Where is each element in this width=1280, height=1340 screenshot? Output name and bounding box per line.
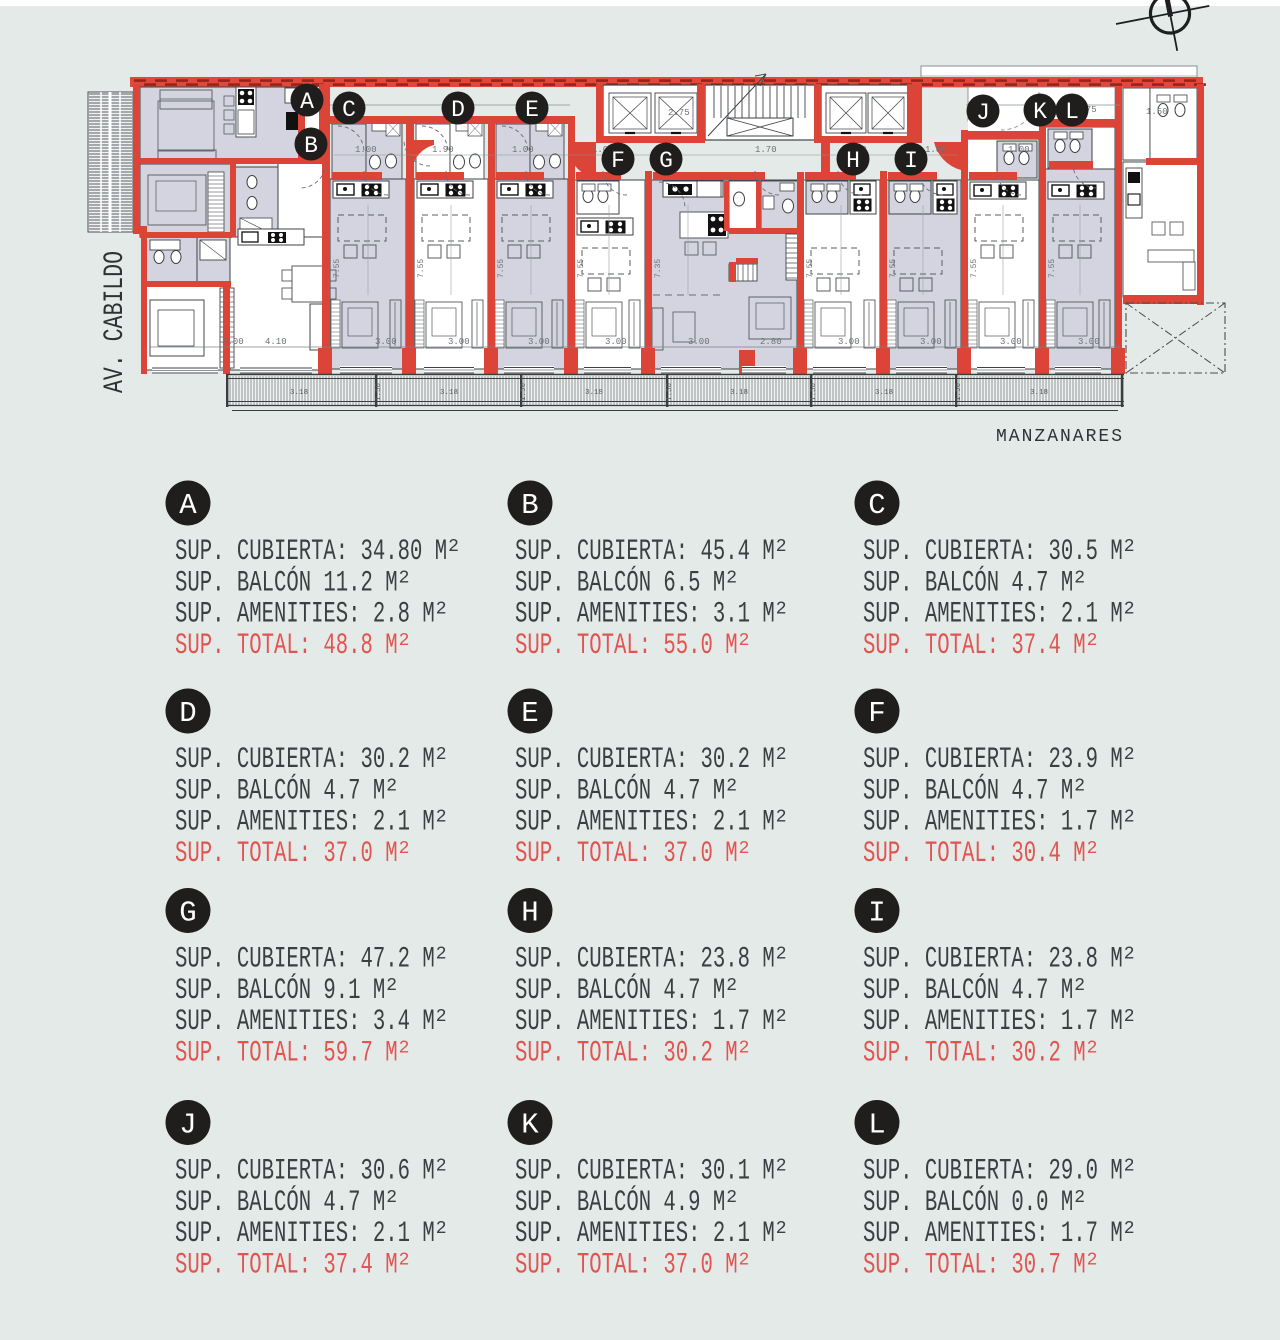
svg-text:SUP. BALCÓN 4.7 M: SUP. BALCÓN 4.7 M [863,565,1073,599]
svg-text:2: 2 [1124,745,1135,765]
svg-text:2: 2 [739,839,750,859]
svg-text:SUP. BALCÓN 6.5 M: SUP. BALCÓN 6.5 M [515,565,725,599]
svg-text:2: 2 [776,808,787,828]
svg-text:SUP. BALCÓN 4.7 M: SUP. BALCÓN 4.7 M [175,1185,385,1219]
svg-text:I: I [904,148,918,174]
svg-text:2: 2 [1087,1038,1098,1058]
svg-text:2: 2 [399,839,410,859]
svg-text:F: F [611,148,625,174]
svg-text:2: 2 [436,1157,447,1177]
svg-text:3.00: 3.00 [920,337,942,347]
svg-text:2: 2 [726,976,737,996]
svg-text:7.55: 7.55 [333,259,342,278]
svg-text:SUP. CUBIERTA: 30.6 M: SUP. CUBIERTA: 30.6 M [175,1155,435,1188]
svg-text:1.00: 1.00 [925,145,947,155]
svg-text:1.50: 1.50 [666,382,674,401]
svg-text:B: B [521,489,538,522]
svg-text:SUP. BALCÓN 4.7 M: SUP. BALCÓN 4.7 M [863,973,1073,1007]
svg-text:2: 2 [739,1038,750,1058]
svg-text:H: H [521,897,538,930]
svg-text:2: 2 [739,1250,750,1270]
svg-text:2: 2 [1124,1157,1135,1177]
svg-text:SUP. AMENITIES: 1.7 M: SUP. AMENITIES: 1.7 M [863,1217,1123,1250]
svg-text:7.55: 7.55 [970,259,979,278]
svg-text:3.00: 3.00 [1000,337,1022,347]
svg-text:2: 2 [1124,808,1135,828]
svg-text:2: 2 [436,945,447,965]
svg-text:H: H [846,148,860,174]
svg-text:G: G [659,148,673,174]
svg-text:B: B [304,133,318,159]
svg-text:SUP. CUBIERTA: 23.9 M: SUP. CUBIERTA: 23.9 M [863,743,1123,776]
svg-text:SUP. TOTAL: 30.2 M: SUP. TOTAL: 30.2 M [515,1036,738,1069]
svg-text:2: 2 [1074,976,1085,996]
svg-text:1.00: 1.00 [355,145,377,155]
svg-text:SUP. BALCÓN 4.7 M: SUP. BALCÓN 4.7 M [863,773,1073,807]
svg-text:3.18: 3.18 [290,389,308,397]
svg-text:J: J [976,100,990,126]
svg-text:SUP. TOTAL: 30.2 M: SUP. TOTAL: 30.2 M [863,1036,1086,1069]
svg-text:3.00: 3.00 [222,337,244,347]
svg-text:2: 2 [1074,776,1085,796]
svg-text:D: D [179,697,196,730]
svg-text:SUP. CUBIERTA: 30.5 M: SUP. CUBIERTA: 30.5 M [863,535,1123,568]
svg-text:F: F [868,697,885,730]
svg-text:L: L [1065,99,1079,125]
svg-text:SUP. AMENITIES: 3.1 M: SUP. AMENITIES: 3.1 M [515,598,775,631]
svg-text:2: 2 [726,1188,737,1208]
svg-text:7.35: 7.35 [654,259,663,278]
svg-text:3.18: 3.18 [440,389,458,397]
svg-text:SUP. BALCÓN 0.0 M: SUP. BALCÓN 0.0 M [863,1185,1073,1219]
svg-text:2: 2 [1074,1188,1085,1208]
svg-text:3.18: 3.18 [730,389,748,397]
svg-text:2: 2 [1087,839,1098,859]
svg-text:SUP. TOTAL: 59.7 M: SUP. TOTAL: 59.7 M [175,1036,398,1069]
svg-text:2: 2 [776,945,787,965]
svg-text:SUP. CUBIERTA: 30.1 M: SUP. CUBIERTA: 30.1 M [515,1155,775,1188]
svg-text:2: 2 [739,631,750,651]
svg-text:2.80: 2.80 [760,337,782,347]
svg-text:SUP. AMENITIES: 2.1 M: SUP. AMENITIES: 2.1 M [175,806,435,839]
svg-text:SUP. TOTAL: 30.4 M: SUP. TOTAL: 30.4 M [863,837,1086,870]
svg-text:7.55: 7.55 [417,259,426,278]
svg-text:7.55: 7.55 [806,259,815,278]
svg-text:SUP. CUBIERTA: 30.2 M: SUP. CUBIERTA: 30.2 M [175,743,435,776]
svg-text:1.50: 1.50 [375,382,383,401]
svg-text:3.00: 3.00 [605,337,627,347]
svg-text:7.55: 7.55 [889,259,898,278]
svg-text:2: 2 [399,568,410,588]
svg-text:E: E [525,97,539,123]
svg-text:2.75: 2.75 [668,108,690,118]
svg-text:D: D [451,97,465,123]
svg-text:SUP. TOTAL: 37.0 M: SUP. TOTAL: 37.0 M [515,1248,738,1281]
svg-text:SUP. CUBIERTA: 29.0 M: SUP. CUBIERTA: 29.0 M [863,1155,1123,1188]
svg-text:2: 2 [436,1007,447,1027]
svg-text:1.50: 1.50 [520,382,528,401]
svg-text:2: 2 [776,1157,787,1177]
svg-text:3.00: 3.00 [1078,337,1100,347]
svg-text:SUP. CUBIERTA: 47.2 M: SUP. CUBIERTA: 47.2 M [175,943,435,976]
svg-text:2: 2 [1124,1007,1135,1027]
svg-text:SUP. BALCÓN 4.9 M: SUP. BALCÓN 4.9 M [515,1185,725,1219]
svg-text:SUP. AMENITIES: 2.1 M: SUP. AMENITIES: 2.1 M [175,1217,435,1250]
svg-text:C: C [868,489,885,522]
svg-text:1.00: 1.00 [1008,145,1030,155]
svg-text:SUP. BALCÓN 9.1 M: SUP. BALCÓN 9.1 M [175,973,385,1007]
svg-text:2: 2 [436,745,447,765]
svg-text:SUP. CUBIERTA: 34.80 M: SUP. CUBIERTA: 34.80 M [175,535,447,568]
svg-text:SUP. AMENITIES: 1.7 M: SUP. AMENITIES: 1.7 M [515,1005,775,1038]
svg-text:SUP. CUBIERTA: 23.8 M: SUP. CUBIERTA: 23.8 M [515,943,775,976]
svg-text:1.90: 1.90 [432,145,454,155]
svg-text:2: 2 [776,1007,787,1027]
svg-text:2: 2 [386,1188,397,1208]
svg-text:2: 2 [436,600,447,620]
svg-text:SUP. AMENITIES: 2.1 M: SUP. AMENITIES: 2.1 M [863,598,1123,631]
svg-text:SUP. AMENITIES: 2.1 M: SUP. AMENITIES: 2.1 M [515,806,775,839]
svg-text:SUP. TOTAL: 37.0 M: SUP. TOTAL: 37.0 M [515,837,738,870]
svg-text:4.10: 4.10 [265,337,287,347]
svg-text:L: L [868,1109,885,1142]
svg-text:MANZANARES: MANZANARES [996,427,1122,447]
svg-text:2: 2 [448,537,459,557]
svg-text:3.00: 3.00 [375,337,397,347]
svg-text:2: 2 [776,600,787,620]
svg-text:2: 2 [1124,537,1135,557]
svg-text:1.50: 1.50 [955,382,963,401]
svg-text:2: 2 [776,745,787,765]
svg-text:SUP. TOTAL: 55.0 M: SUP. TOTAL: 55.0 M [515,629,738,662]
svg-text:2: 2 [1124,1219,1135,1239]
svg-text:3.00: 3.00 [448,337,470,347]
svg-text:2: 2 [1124,600,1135,620]
svg-text:A: A [179,489,197,522]
svg-text:1.00: 1.00 [512,145,534,155]
svg-text:SUP. BALCÓN 11.2 M: SUP. BALCÓN 11.2 M [175,565,398,599]
svg-text:2: 2 [399,1250,410,1270]
svg-text:2: 2 [1124,945,1135,965]
svg-text:2: 2 [436,808,447,828]
svg-text:7.55: 7.55 [497,259,506,278]
svg-text:E: E [521,697,538,730]
svg-text:SUP. BALCÓN 4.7 M: SUP. BALCÓN 4.7 M [515,773,725,807]
svg-text:SUP. AMENITIES: 2.1 M: SUP. AMENITIES: 2.1 M [515,1217,775,1250]
svg-text:2: 2 [386,776,397,796]
svg-text:3.18: 3.18 [1030,389,1048,397]
svg-text:SUP. BALCÓN 4.7 M: SUP. BALCÓN 4.7 M [515,973,725,1007]
svg-text:7.55: 7.55 [1048,259,1057,278]
svg-text:SUP. TOTAL: 37.4 M: SUP. TOTAL: 37.4 M [175,1248,398,1281]
svg-text:2: 2 [726,568,737,588]
svg-text:I: I [868,897,885,930]
svg-text:K: K [1033,99,1047,125]
svg-text:2: 2 [726,776,737,796]
svg-text:K: K [521,1109,539,1142]
svg-text:2: 2 [1087,1250,1098,1270]
svg-text:2: 2 [386,976,397,996]
svg-text:SUP. AMENITIES: 3.4 M: SUP. AMENITIES: 3.4 M [175,1005,435,1038]
svg-text:2: 2 [399,1038,410,1058]
svg-text:SUP. CUBIERTA: 45.4 M: SUP. CUBIERTA: 45.4 M [515,535,775,568]
svg-text:2: 2 [1087,631,1098,651]
svg-text:1.70: 1.70 [755,145,777,155]
svg-text:2: 2 [1074,568,1085,588]
svg-text:3.18: 3.18 [585,389,603,397]
svg-text:SUP. AMENITIES: 2.8 M: SUP. AMENITIES: 2.8 M [175,598,435,631]
svg-text:SUP. CUBIERTA: 30.2 M: SUP. CUBIERTA: 30.2 M [515,743,775,776]
svg-text:SUP. CUBIERTA: 23.8 M: SUP. CUBIERTA: 23.8 M [863,943,1123,976]
svg-text:2: 2 [399,631,410,651]
svg-text:3.18: 3.18 [875,389,893,397]
svg-text:SUP. TOTAL: 48.8 M: SUP. TOTAL: 48.8 M [175,629,398,662]
svg-text:SUP. TOTAL: 37.0 M: SUP. TOTAL: 37.0 M [175,837,398,870]
svg-text:2: 2 [776,537,787,557]
svg-text:SUP. TOTAL: 30.7 M: SUP. TOTAL: 30.7 M [863,1248,1086,1281]
svg-text:3.00: 3.00 [688,337,710,347]
svg-text:SUP. AMENITIES: 1.7 M: SUP. AMENITIES: 1.7 M [863,806,1123,839]
svg-text:C: C [342,97,356,123]
svg-text:1.50: 1.50 [810,382,818,401]
svg-text:AV. CABILDO: AV. CABILDO [100,251,131,393]
svg-text:SUP. BALCÓN 4.7 M: SUP. BALCÓN 4.7 M [175,773,385,807]
svg-text:3.00: 3.00 [838,337,860,347]
svg-text:SUP. TOTAL: 37.4 M: SUP. TOTAL: 37.4 M [863,629,1086,662]
svg-text:3.00: 3.00 [528,337,550,347]
svg-text:7.55: 7.55 [577,259,586,278]
svg-text:SUP. AMENITIES: 1.7 M: SUP. AMENITIES: 1.7 M [863,1005,1123,1038]
svg-text:J: J [179,1109,196,1142]
svg-text:G: G [179,897,196,930]
svg-text:2: 2 [776,1219,787,1239]
svg-text:1.50: 1.50 [1146,107,1168,117]
svg-text:2: 2 [436,1219,447,1239]
svg-text:A: A [300,89,314,115]
